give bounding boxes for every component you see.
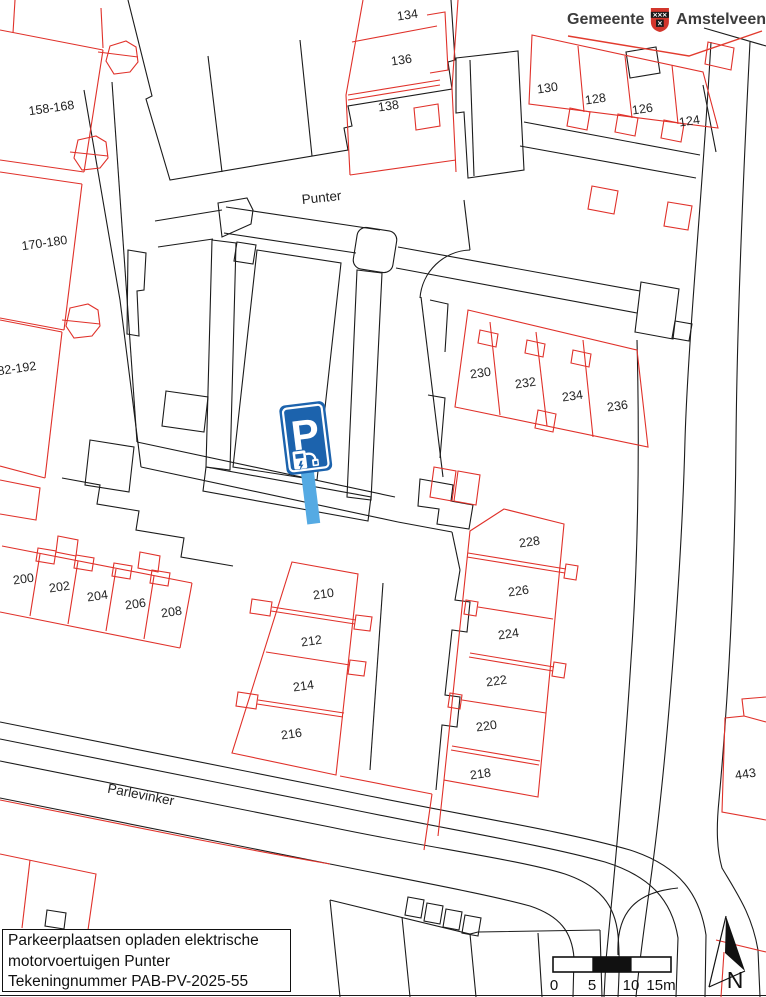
black-linework	[0, 0, 766, 997]
label-230: 230	[469, 365, 492, 382]
label-124: 124	[678, 113, 701, 130]
label-138: 138	[377, 98, 400, 115]
label-200: 200	[12, 571, 35, 588]
label-228: 228	[518, 534, 541, 551]
label-234: 234	[561, 388, 584, 405]
label-218: 218	[469, 766, 492, 783]
label-136: 136	[390, 52, 413, 69]
logo-municipality-text: Gemeente	[567, 11, 644, 29]
north-label: N	[727, 967, 744, 993]
label-202: 202	[48, 579, 71, 596]
red-linework	[0, 0, 766, 997]
title-line-1: Parkeerplaatsen opladen elektrische	[8, 931, 285, 952]
scale-tick-0: 0	[550, 977, 558, 994]
scale-bar: 0 5 10 15m	[550, 957, 676, 994]
label-214: 214	[292, 678, 315, 695]
map-canvas: 134 136 138 130 128 126 124 158-168 170-…	[0, 0, 766, 997]
label-226: 226	[507, 583, 530, 600]
label-222: 222	[485, 673, 508, 690]
label-130: 130	[536, 80, 559, 97]
label-224: 224	[497, 626, 520, 643]
logo-chevron-line	[564, 28, 766, 60]
drawing-title-block: Parkeerplaatsen opladen elektrische moto…	[2, 929, 291, 992]
label-216: 216	[280, 726, 303, 743]
label-206: 206	[124, 596, 147, 613]
label-212: 212	[300, 633, 323, 650]
scale-tick-15m: 15m	[646, 977, 675, 994]
label-210: 210	[312, 586, 335, 603]
label-134: 134	[396, 7, 419, 24]
street-label-parlevinker: Parlevinker	[106, 781, 176, 809]
label-170-180: 170-180	[21, 233, 68, 253]
label-126: 126	[631, 101, 654, 118]
scale-tick-5: 5	[588, 977, 596, 994]
street-label-punter: Punter	[301, 188, 343, 207]
label-158-168: 158-168	[28, 98, 75, 118]
label-204: 204	[86, 588, 109, 605]
label-232: 232	[514, 375, 537, 392]
label-182-192: 182-192	[0, 359, 37, 379]
north-arrow-icon: N	[709, 916, 745, 993]
label-443: 443	[734, 766, 757, 783]
scale-tick-10: 10	[623, 977, 640, 994]
label-220: 220	[475, 718, 498, 735]
label-128: 128	[584, 91, 607, 108]
base-map: 134 136 138 130 128 126 124 158-168 170-…	[0, 0, 766, 997]
title-line-3: Tekeningnummer PAB-PV-2025-55	[8, 972, 285, 993]
label-208: 208	[160, 604, 183, 621]
logo-city-text: Amstelveen	[676, 11, 766, 29]
title-line-2: motorvoertuigen Punter	[8, 952, 285, 973]
label-236: 236	[606, 398, 629, 415]
